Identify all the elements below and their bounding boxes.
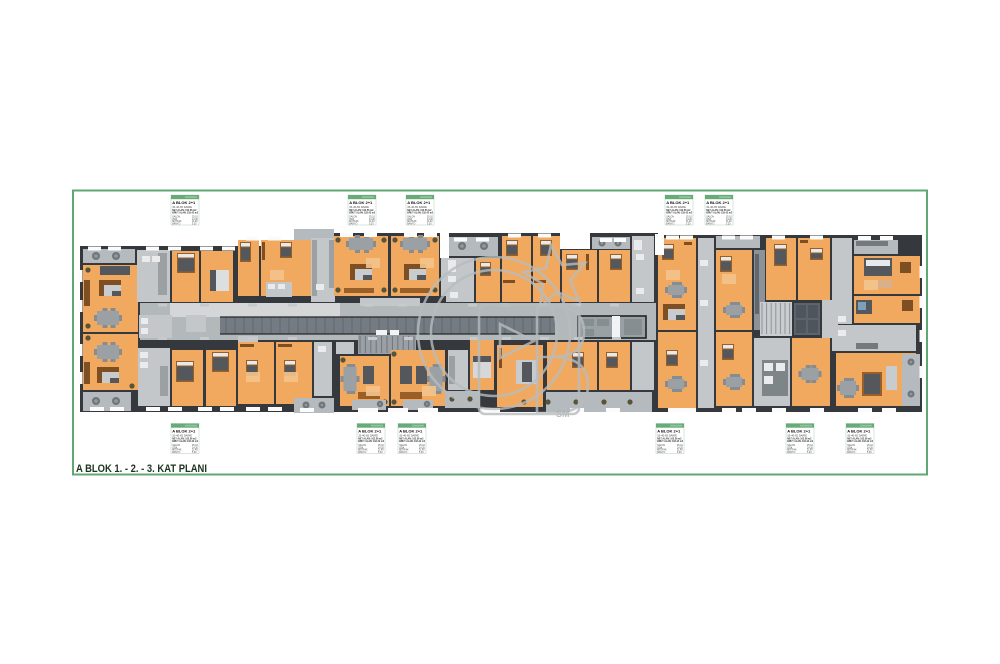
svg-text:15-40-65 DAIRE: 15-40-65 DAIRE: [172, 205, 192, 209]
svg-text:BANYO: BANYO: [172, 451, 180, 454]
svg-text:BRUT ALAN: 118.42 m2: BRUT ALAN: 118.42 m2: [847, 440, 874, 443]
svg-text:BRUT ALAN: 118.42 m2: BRUT ALAN: 118.42 m2: [172, 212, 199, 215]
svg-text:BANYO: BANYO: [358, 451, 366, 454]
svg-text:5.20: 5.20: [686, 223, 691, 225]
svg-text:BANYO: BANYO: [787, 451, 795, 454]
svg-text:BRUT ALAN: 118.42 m2: BRUT ALAN: 118.42 m2: [172, 440, 199, 443]
svg-text:15-40-65 DAIRE: 15-40-65 DAIRE: [787, 433, 807, 437]
svg-text:5.20: 5.20: [427, 223, 432, 225]
svg-text:A BLOK 2+1: A BLOK 2+1: [787, 429, 811, 434]
svg-text:15-40-65 DAIRE: 15-40-65 DAIRE: [706, 205, 726, 209]
svg-text:5.20: 5.20: [369, 223, 374, 225]
svg-text:15-40-65 DAIRE: 15-40-65 DAIRE: [399, 433, 419, 437]
svg-text:15-40-65 DAIRE: 15-40-65 DAIRE: [407, 205, 427, 209]
svg-text:BANYO: BANYO: [407, 222, 415, 225]
svg-text:BRUT ALAN: 118.42 m2: BRUT ALAN: 118.42 m2: [349, 212, 376, 215]
svg-text:A BLOK 2+1: A BLOK 2+1: [358, 429, 382, 434]
svg-text:5.20: 5.20: [807, 452, 812, 454]
svg-text:BANYO: BANYO: [172, 222, 180, 225]
svg-text:BRUT ALAN: 118.42 m2: BRUT ALAN: 118.42 m2: [358, 440, 385, 443]
svg-text:BANYO: BANYO: [399, 451, 407, 454]
svg-text:BRUT ALAN: 118.42 m2: BRUT ALAN: 118.42 m2: [666, 212, 693, 215]
svg-text:15-40-65 DAIRE: 15-40-65 DAIRE: [657, 433, 677, 437]
svg-text:BRUT ALAN: 118.42 m2: BRUT ALAN: 118.42 m2: [399, 440, 426, 443]
svg-text:A BLOK 2+1: A BLOK 2+1: [666, 200, 690, 205]
svg-text:BRUT ALAN: 118.42 m2: BRUT ALAN: 118.42 m2: [706, 212, 733, 215]
svg-text:A BLOK 2+1: A BLOK 2+1: [349, 200, 373, 205]
svg-text:5.20: 5.20: [867, 452, 872, 454]
svg-text:5.20: 5.20: [192, 223, 197, 225]
svg-text:BANYO: BANYO: [349, 222, 357, 225]
svg-text:15-40-65 DAIRE: 15-40-65 DAIRE: [847, 433, 867, 437]
svg-text:A BLOK 1. - 2. - 3. KAT PLANI: A BLOK 1. - 2. - 3. KAT PLANI: [76, 463, 207, 475]
svg-text:BRUT ALAN: 118.42 m2: BRUT ALAN: 118.42 m2: [787, 440, 814, 443]
svg-text:15-40-65 DAIRE: 15-40-65 DAIRE: [358, 433, 378, 437]
svg-text:A BLOK 2+1: A BLOK 2+1: [407, 200, 431, 205]
svg-text:BANYO: BANYO: [657, 451, 665, 454]
svg-text:5.20: 5.20: [677, 452, 682, 454]
svg-text:5.20: 5.20: [192, 452, 197, 454]
svg-text:SM: SM: [556, 409, 570, 419]
svg-text:BANYO: BANYO: [666, 222, 674, 225]
svg-text:BANYO: BANYO: [706, 222, 714, 225]
svg-text:A BLOK 2+1: A BLOK 2+1: [172, 429, 196, 434]
svg-text:5.20: 5.20: [726, 223, 731, 225]
svg-text:A BLOK 2+1: A BLOK 2+1: [657, 429, 681, 434]
svg-text:A BLOK 2+1: A BLOK 2+1: [172, 200, 196, 205]
svg-text:BRUT ALAN: 118.42 m2: BRUT ALAN: 118.42 m2: [407, 212, 434, 215]
svg-text:5.20: 5.20: [378, 452, 383, 454]
svg-text:15-40-65 DAIRE: 15-40-65 DAIRE: [666, 205, 686, 209]
svg-text:15-40-65 DAIRE: 15-40-65 DAIRE: [349, 205, 369, 209]
svg-text:5.20: 5.20: [419, 452, 424, 454]
svg-text:BRUT ALAN: 118.42 m2: BRUT ALAN: 118.42 m2: [657, 440, 684, 443]
svg-text:A BLOK 2+1: A BLOK 2+1: [706, 200, 730, 205]
svg-text:A BLOK 2+1: A BLOK 2+1: [399, 429, 423, 434]
svg-text:15-40-65 DAIRE: 15-40-65 DAIRE: [172, 433, 192, 437]
svg-text:BANYO: BANYO: [847, 451, 855, 454]
svg-text:A BLOK 2+1: A BLOK 2+1: [847, 429, 871, 434]
